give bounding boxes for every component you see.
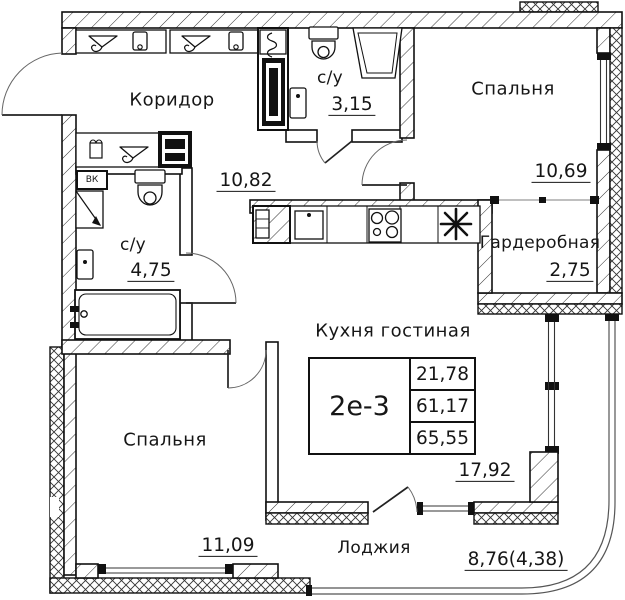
unit-areas: 21,78 61,17 65,55 [411,359,474,453]
wall-right-below-window [597,150,610,293]
unit-apartment-area: 61,17 [411,391,474,423]
loggia-door [373,487,417,512]
toilet-icon [135,170,165,205]
wall-left-mid [62,115,76,347]
room-label-bath-left: с/у [120,235,146,255]
wall-loggia-right [474,502,558,513]
unit-type: 2е-3 [310,359,411,453]
stove-icon [369,209,401,242]
room-area-corridor: 10,82 [217,170,276,192]
wall-loggia-left [266,502,368,513]
wall-loggia-right-outer [474,513,558,524]
room-area-bath-top: 3,15 [328,94,375,116]
room-label-wardrobe: Гардеробная [480,233,601,253]
window-bedroom-bottom [98,564,233,574]
window-kitchen-loggia-side [545,314,559,454]
wall-bath-left-right-upper [180,168,192,255]
wall-bottom-corner-left [76,564,98,578]
bathtub-icon [70,290,180,339]
cabinet [158,131,192,168]
unit-info-card: 2е-3 21,78 61,17 65,55 [308,357,476,455]
wall-wardrobe-bottom-outer [478,304,622,314]
fridge-icon [441,209,471,239]
duct-shaft-icon [76,191,103,228]
room-area-bedroom-top: 10,69 [532,161,591,183]
utility-box-label: ВК [86,175,99,185]
wall-wardrobe-bottom [478,293,622,304]
bag-icon [90,140,102,158]
wall-loggia-corner [530,452,558,502]
unit-living-area: 21,78 [411,359,474,391]
room-area-wardrobe: 2,75 [546,260,593,282]
closet-top-2 [170,30,260,53]
kitchen-counter [253,206,480,243]
wall-bedroom-kitchen [266,342,278,520]
room-label-kitchen-living: Кухня гостиная [315,321,471,342]
floor-plan: Коридор 10,82 с/у 3,15 Спальня 10,69 Гар… [0,0,625,600]
vent-shaft-corridor [258,28,288,130]
wall-bedroom-bottom-top [62,340,230,354]
room-area-loggia: 8,76(4,38) [465,549,568,571]
kitchen-duct-grille [256,210,269,238]
bath-top-door [317,141,352,163]
closet-mid [76,131,192,168]
room-area-kitchen-living: 17,92 [456,460,515,482]
partition-bedroom-wardrobe [490,196,599,204]
closet-top-1 [76,30,166,53]
shower-icon [353,28,402,78]
wall-right-above-window [597,28,610,53]
wall-left-lower-inner [64,347,76,575]
kitchen-sink-icon [295,211,323,239]
storage-box-icon [229,32,243,50]
wall-bottom-corner-right [233,564,278,578]
storage-box-icon [133,32,147,50]
sink-icon [290,88,306,118]
bedroom-bottom-door [228,350,266,388]
wall-right-outer [610,28,622,293]
window-bedroom-top [597,53,611,150]
wall-notch [50,497,59,517]
unit-total-area: 65,55 [411,423,474,453]
wall-left-upper [62,28,76,54]
bedroom-top-door [362,140,407,185]
wall-bath-top-bottom-left [286,130,317,142]
sink-icon [77,250,93,279]
wall-loggia-left-outer [266,513,368,524]
room-label-bedroom-top: Спальня [471,79,555,100]
window-kitchen-loggia-bottom [417,502,474,515]
wall-top [62,12,622,28]
wall-bottom-outer [50,578,310,593]
room-label-loggia: Лоджия [337,538,410,558]
wall-left-lower-outer [50,347,64,593]
room-label-bath-top: с/у [317,68,343,88]
bath-left-door [186,253,236,303]
toilet-icon [309,27,338,59]
wall-bath-top-bottom-right [352,130,402,142]
wall-top-bump [520,2,598,12]
wall-bedroom-top-left-upper [400,28,414,138]
room-label-corridor: Коридор [129,90,214,111]
entrance-door [2,53,62,115]
room-area-bedroom-bottom: 11,09 [199,535,258,557]
wall-bath-left-right-lower [180,303,192,345]
room-area-bath-left: 4,75 [127,260,174,282]
room-label-bedroom-bottom: Спальня [123,430,207,451]
